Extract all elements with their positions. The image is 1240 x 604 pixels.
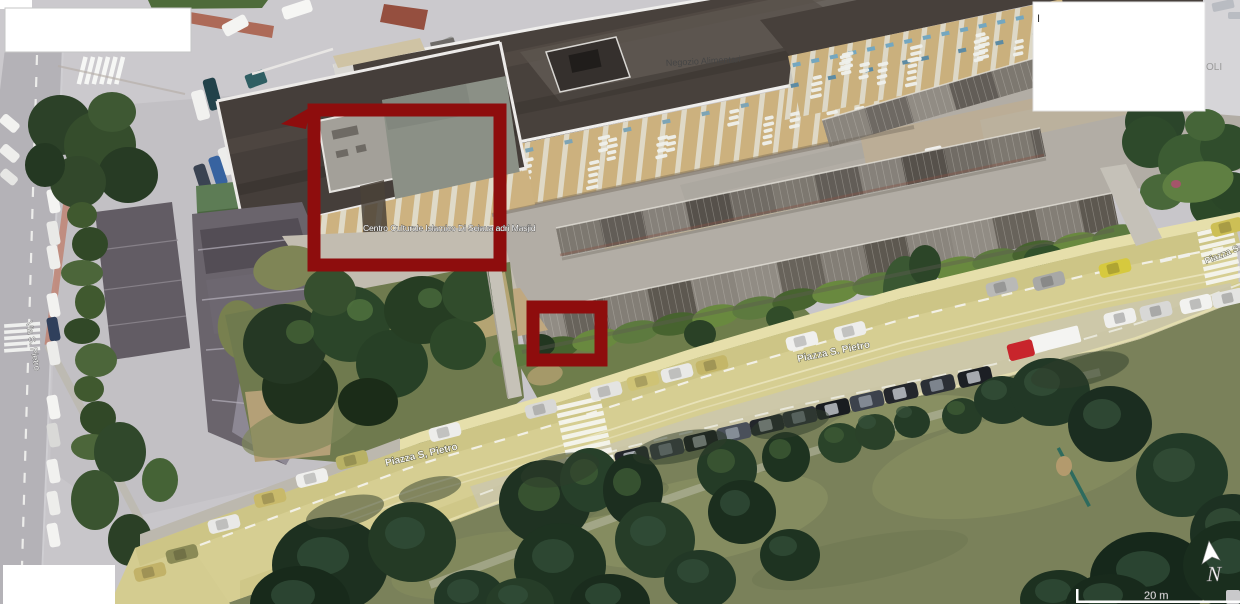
svg-text:I: I	[1037, 13, 1040, 25]
svg-text:OLI: OLI	[1206, 62, 1222, 73]
svg-text:Centro Culturale Islamico Di S: Centro Culturale Islamico Di Sciaua adri…	[363, 223, 536, 233]
svg-text:20 m: 20 m	[1144, 590, 1168, 602]
svg-text:N: N	[1206, 562, 1222, 586]
